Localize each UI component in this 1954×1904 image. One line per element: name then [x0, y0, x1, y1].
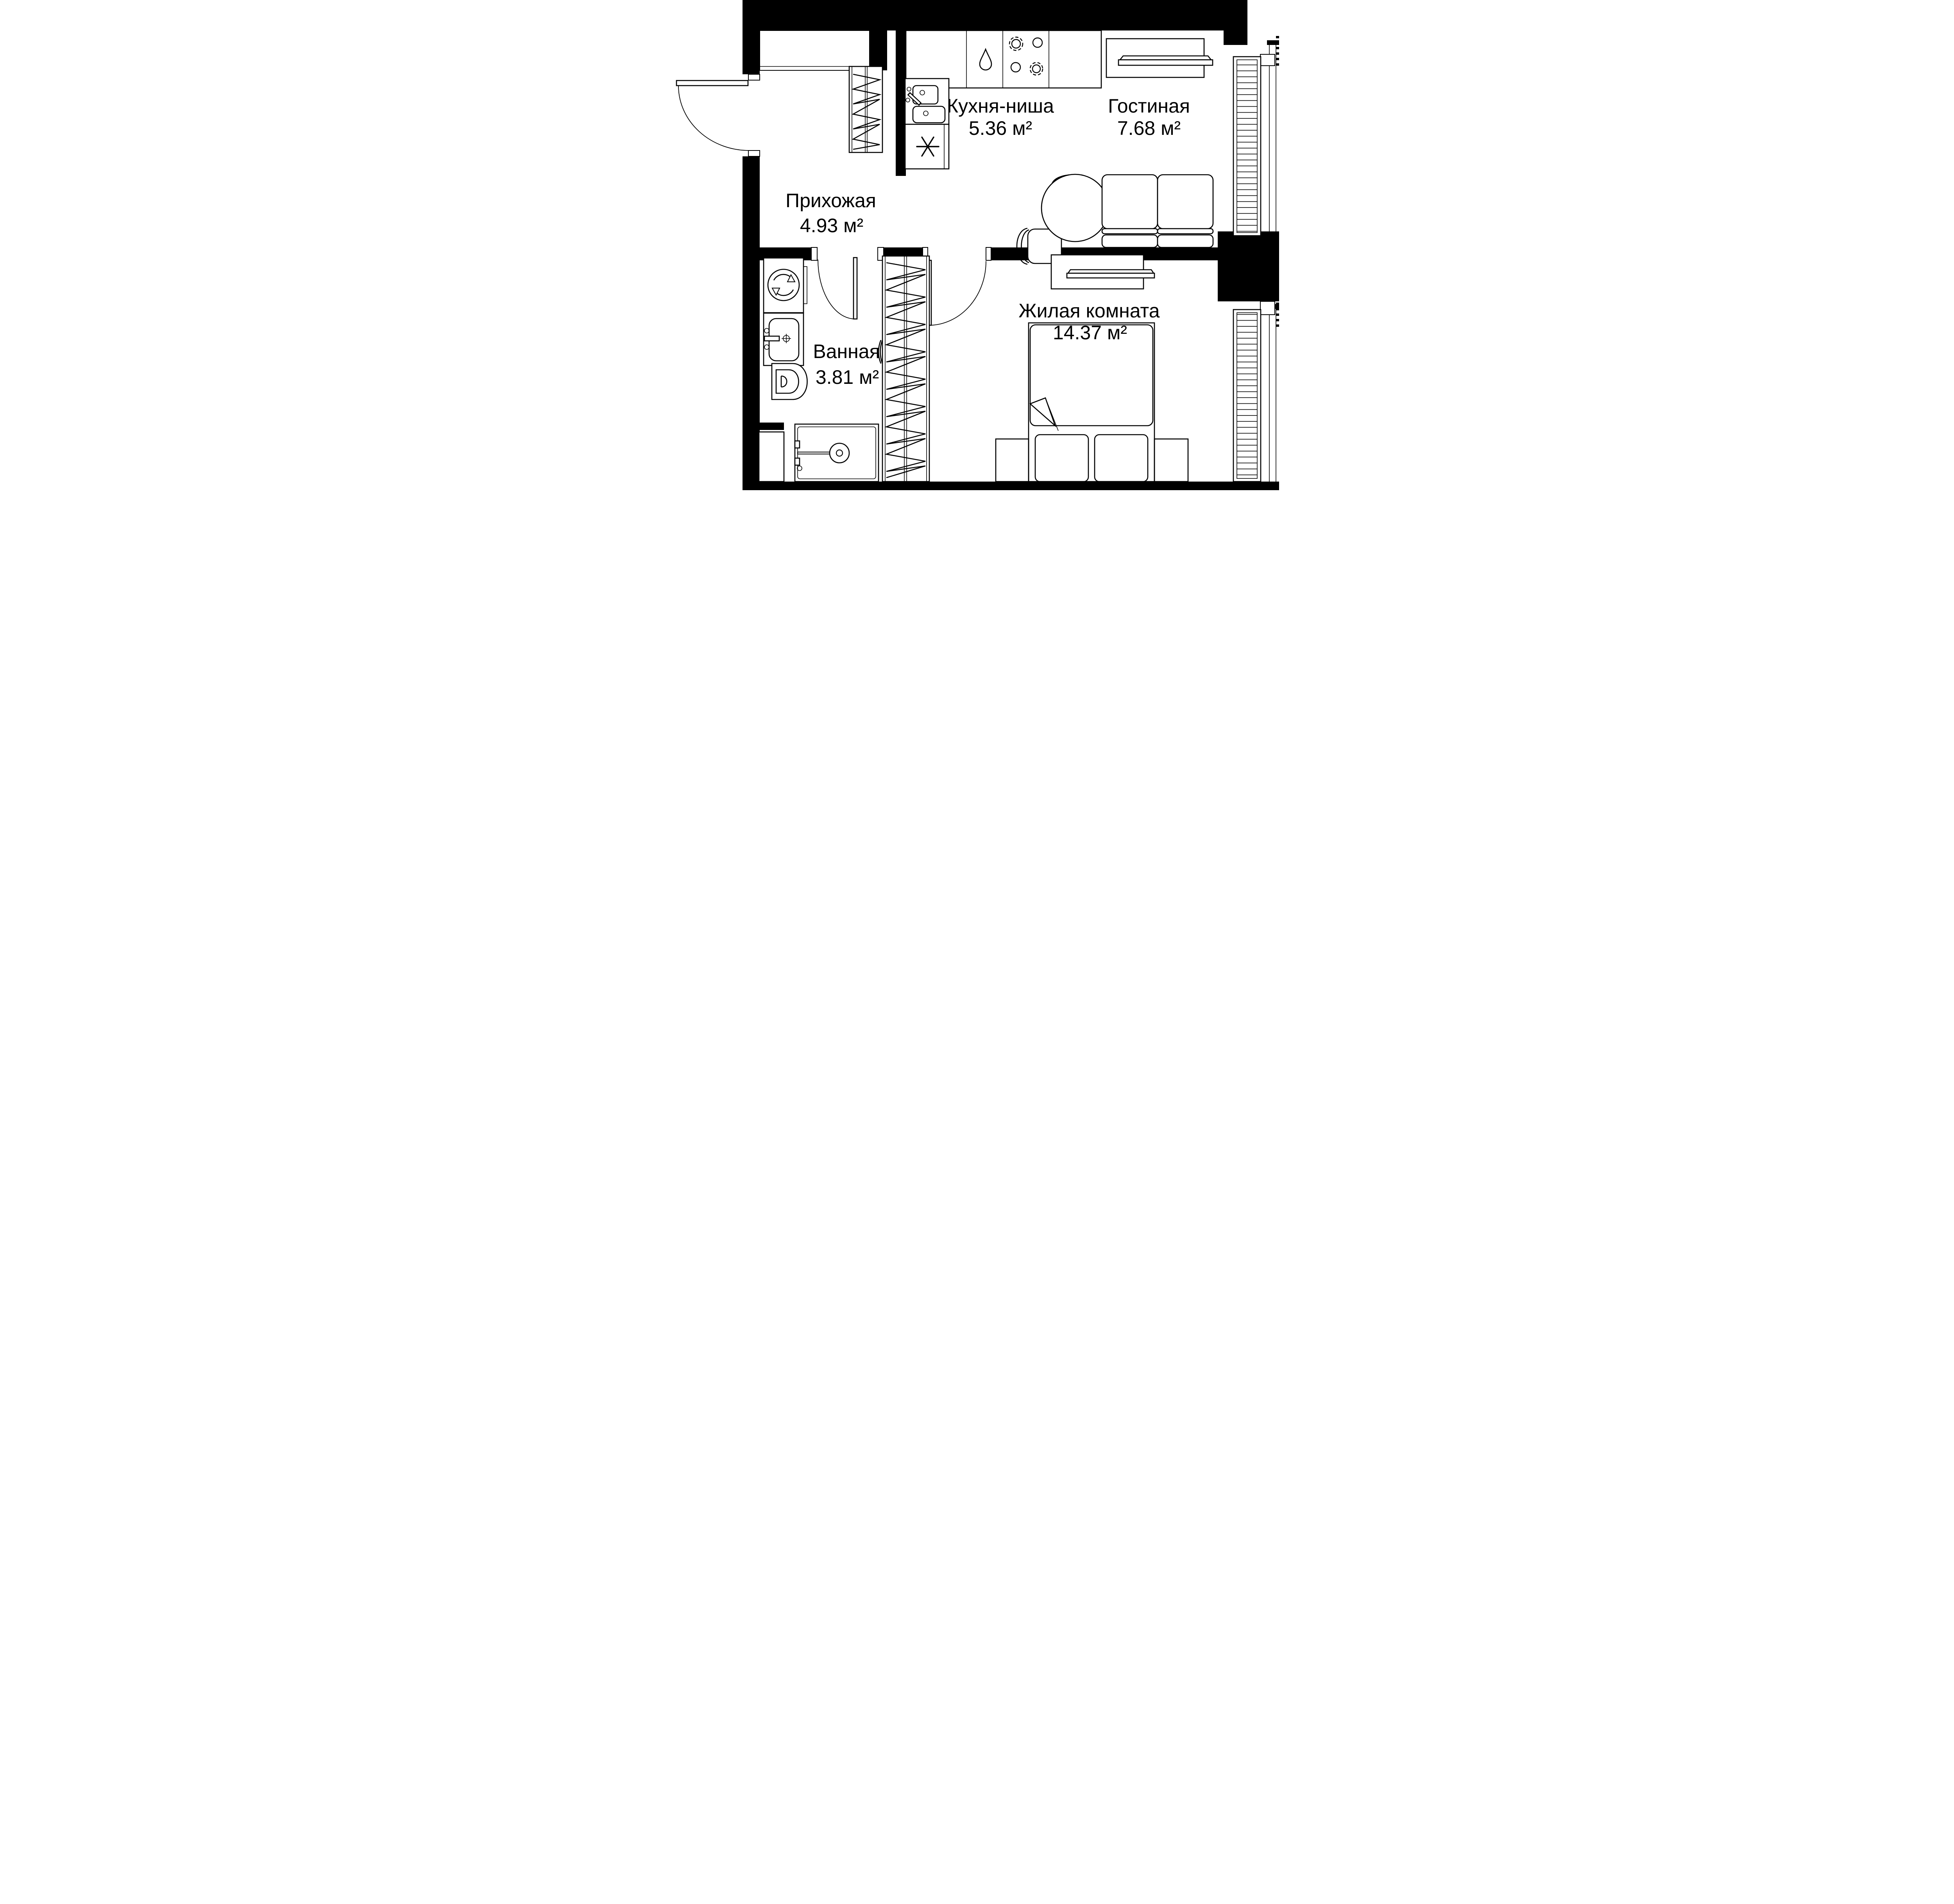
- room-area-bedroom: 14.37 м²: [1052, 322, 1127, 344]
- sofa-icon: [1102, 175, 1213, 247]
- window-sill-hatch: [1276, 297, 1279, 327]
- sofa-seat: [1158, 175, 1213, 229]
- room-area-bathroom: 3.81 м²: [815, 366, 879, 388]
- wall-left-upper: [743, 0, 760, 74]
- shower-icon: [795, 424, 879, 482]
- fridge-asterisk-icon: [905, 124, 949, 169]
- window-living: [1260, 36, 1279, 238]
- bathroom-sink-icon: [764, 313, 803, 365]
- wall-left-lower: [743, 156, 760, 490]
- sofa-backrest: [1102, 235, 1158, 247]
- window-end-block: [1267, 233, 1279, 238]
- duct-shaft: [759, 432, 784, 482]
- room-area-kitchen: 5.36 м²: [968, 117, 1032, 139]
- radiator-bedroom-icon: [1233, 310, 1261, 482]
- washing-machine-icon: [764, 258, 807, 313]
- room-label-bathroom: Ванная: [813, 340, 880, 362]
- door-swing-arc: [931, 261, 986, 325]
- wall-bottom: [743, 482, 1279, 490]
- wall-bath-bottom-stub: [760, 423, 784, 430]
- tv-screen: [1067, 273, 1154, 278]
- nightstand-left: [996, 439, 1029, 482]
- nightstand-right: [1154, 439, 1188, 482]
- sofa-seat: [1102, 175, 1158, 229]
- wall-top: [743, 0, 1247, 30]
- faucet: [764, 336, 779, 341]
- wall-top-right-block: [1224, 0, 1247, 45]
- door-swing-arc: [818, 260, 855, 319]
- dining-table-icon: [1041, 174, 1109, 242]
- radiator-living-icon: [1233, 57, 1261, 236]
- tv-bedroom-icon: [1051, 255, 1154, 289]
- window-return-box: [1260, 301, 1275, 315]
- room-label-hallway: Прихожая: [786, 190, 876, 211]
- door-leaf: [854, 258, 857, 319]
- hallway-wardrobe-icon: [849, 66, 882, 152]
- entry-niche: [760, 30, 870, 70]
- floor-plan: Кухня-ниша 5.36 м² Гостиная 7.68 м² Прих…: [675, 0, 1279, 490]
- window-bedroom: [1260, 297, 1279, 482]
- room-area-hallway: 4.93 м²: [800, 215, 863, 236]
- door-frame: [748, 150, 760, 156]
- toilet-icon: [772, 364, 807, 399]
- door-leaf: [676, 81, 748, 86]
- tv-screen: [1118, 60, 1213, 65]
- wall-kitchen-left: [896, 30, 906, 176]
- wall-closet-right: [870, 30, 887, 70]
- room-label-living: Гостиная: [1108, 95, 1190, 117]
- bed-icon: [1029, 323, 1154, 482]
- wall-right-middle-block: [1218, 231, 1279, 301]
- sofa-backrest: [1158, 235, 1213, 247]
- entrance-door: [676, 74, 760, 156]
- door-frame: [748, 74, 760, 80]
- tv-living-icon: [1106, 39, 1213, 77]
- bedroom-door: [928, 260, 986, 325]
- window-return-box: [1260, 54, 1275, 66]
- kitchen-sink-icon: [905, 79, 949, 124]
- tall-wardrobe-icon: [879, 256, 929, 482]
- bed-frame: [1029, 323, 1154, 482]
- bathroom-door: [818, 258, 857, 319]
- room-label-bedroom: Жилая комната: [1018, 300, 1160, 322]
- room-label-kitchen: Кухня-ниша: [947, 95, 1054, 117]
- floor-plan-page: Кухня-ниша 5.36 м² Гостиная 7.68 м² Прих…: [675, 0, 1279, 490]
- door-swing-arc: [678, 86, 749, 150]
- room-area-living: 7.68 м²: [1117, 117, 1180, 139]
